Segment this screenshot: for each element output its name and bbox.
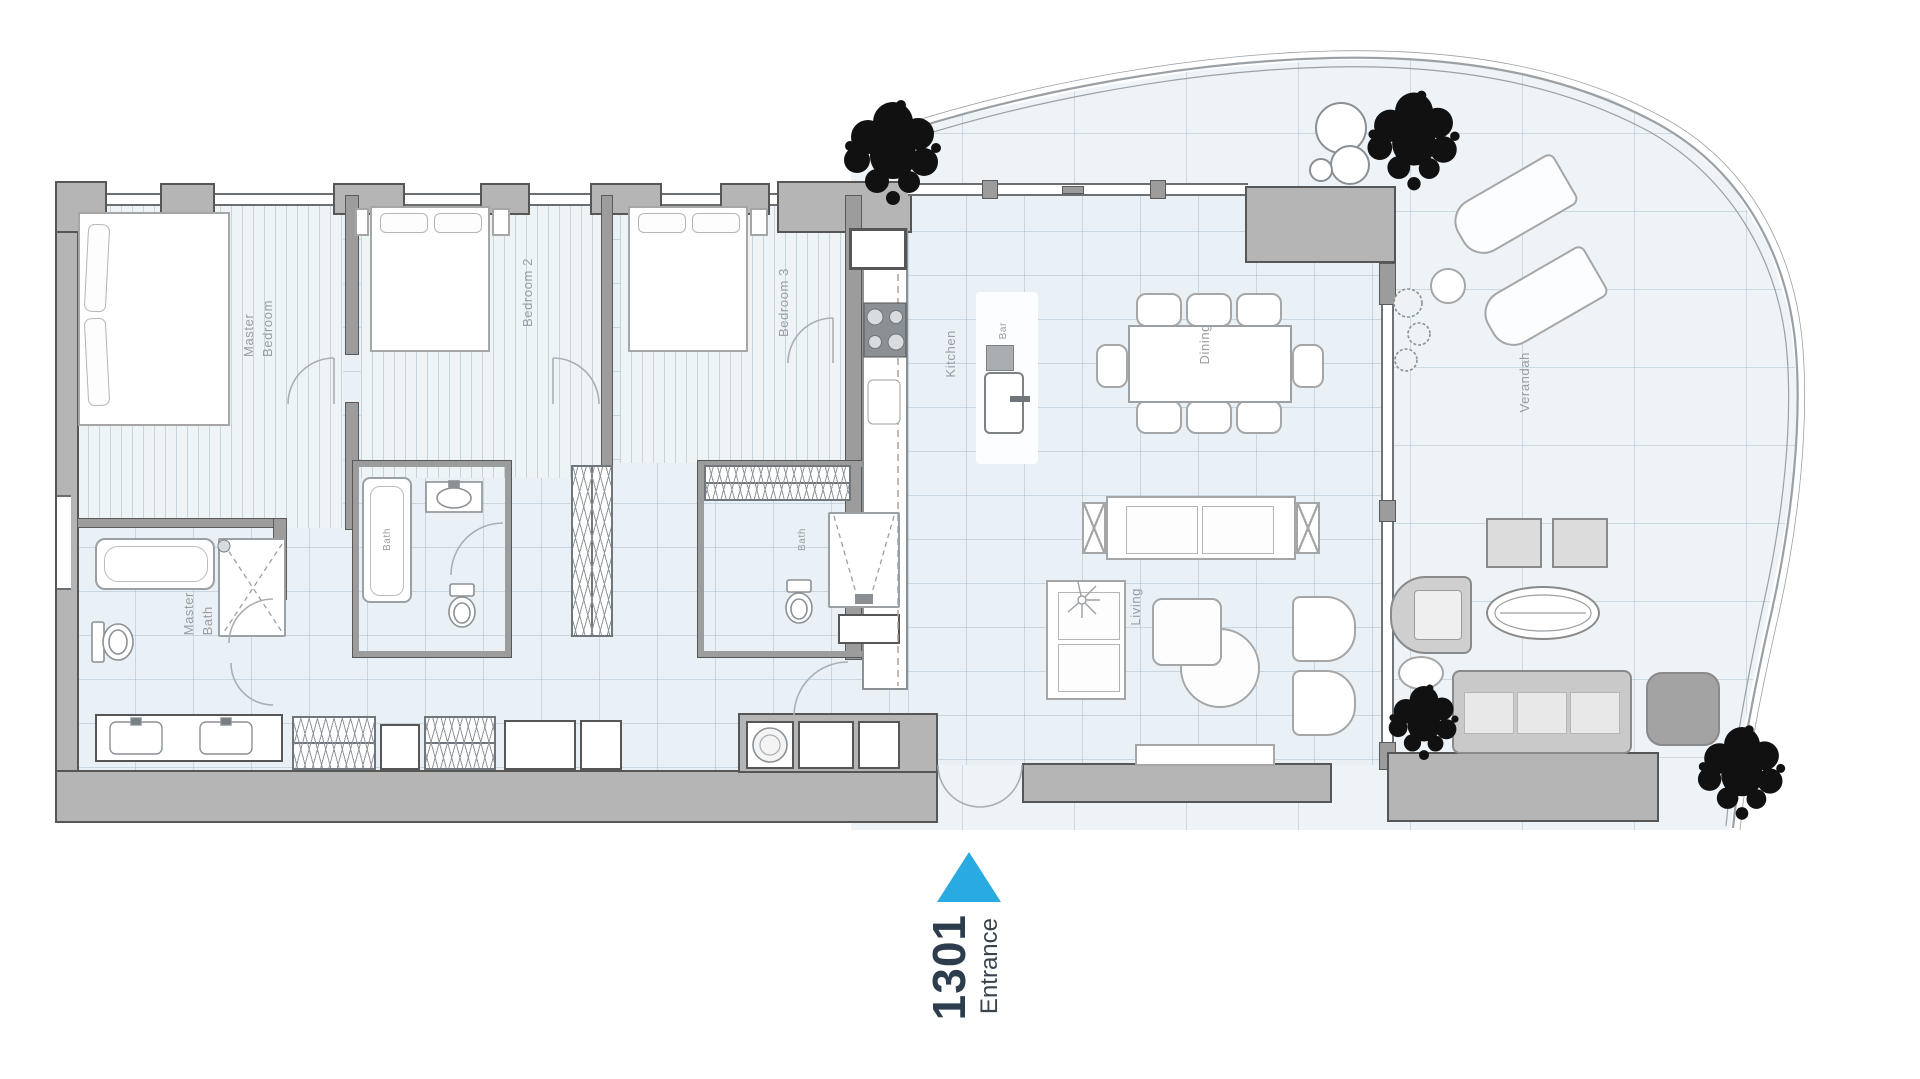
openplan-pier-2 (1150, 180, 1166, 199)
dining-chair-6 (1236, 400, 1282, 434)
lsofa-cushion-2 (1058, 644, 1120, 692)
living-sofa-main (1106, 496, 1296, 560)
label-living: Living (1127, 588, 1146, 626)
entrance-label: Entrance (976, 918, 1004, 1014)
master-bathtub-basin (104, 546, 208, 582)
living-armchair-1 (1292, 596, 1356, 662)
wall-bed2-bed3 (601, 195, 613, 478)
unit-number: 1301 (922, 914, 976, 1020)
living-armchair-2 (1292, 670, 1356, 736)
side-table-left (1082, 502, 1106, 554)
master-bed (78, 212, 230, 426)
outdoor-oval-table (1486, 586, 1600, 640)
master-bed-pillow-2 (84, 317, 111, 406)
wall-living-bottom (1022, 763, 1332, 803)
entrance-arrow-icon (937, 852, 1001, 902)
bed2-pillow-2 (434, 213, 482, 233)
living-sofa-l (1046, 580, 1126, 700)
hall-niche-1 (380, 724, 420, 770)
kitchen-shaft (849, 228, 907, 270)
label-dining: Dining (1196, 324, 1215, 364)
bed3-pillow-2 (692, 213, 740, 233)
outdoor-armchair-seat (1414, 590, 1462, 640)
verandah-chair-2 (1552, 518, 1608, 568)
floor-plan: Master Bedroom Bedroom 2 Bedroom 3 Maste… (0, 0, 1920, 1079)
utility-niche-washer (746, 721, 794, 769)
label-bath3: Bath (796, 528, 811, 551)
hall-wardrobe-2 (424, 716, 496, 770)
outdoor-pouf (1646, 672, 1720, 746)
living-bench (1135, 744, 1275, 766)
outdoor-armchair (1390, 576, 1472, 654)
label-bath2: Bath (381, 528, 396, 551)
bed2-pillow-1 (380, 213, 428, 233)
utility-niche-2 (798, 721, 854, 769)
utility-niche-3 (858, 721, 900, 769)
label-master-bath: Master Bath (180, 592, 218, 635)
outdoor-sofa-cushion-1 (1464, 692, 1514, 734)
wall-pier-1 (160, 183, 215, 215)
bed2 (370, 206, 490, 352)
hall-wardrobe-1 (292, 716, 376, 770)
window-left (57, 495, 71, 590)
outdoor-sofa-cushion-3 (1570, 692, 1620, 734)
nightstand-bed2 (355, 208, 369, 236)
wall-masterbath-top (77, 518, 285, 528)
bed3-pillow-1 (638, 213, 686, 233)
dining-chair-2 (1186, 293, 1232, 327)
label-bedroom3: Bedroom 3 (775, 268, 794, 337)
bed3 (628, 206, 748, 352)
bar-stool (986, 345, 1014, 371)
outdoor-sofa (1452, 670, 1632, 754)
nightstand-bed3 (750, 208, 768, 236)
dining-chair-5 (1186, 400, 1232, 434)
sofa-cushion-2 (1202, 506, 1274, 554)
dining-chair-3 (1236, 293, 1282, 327)
wall-block-top (1245, 186, 1396, 263)
hall-niche-3 (580, 720, 622, 770)
dining-chair-4 (1136, 400, 1182, 434)
dining-chair-right (1292, 344, 1324, 388)
label-verandah: Verandah (1516, 352, 1535, 412)
outdoor-small-table (1398, 656, 1444, 690)
dining-chair-left (1096, 344, 1128, 388)
openplan-pier-1 (982, 180, 998, 199)
divider-stub-top (1379, 263, 1396, 305)
master-vanity (95, 714, 283, 762)
label-kitchen: Kitchen (942, 330, 961, 378)
master-bathtub (95, 538, 215, 590)
label-bar: Bar (997, 322, 1012, 339)
hall-niche-2 (504, 720, 576, 770)
verandah-side-table (1430, 268, 1466, 304)
bath3-shower (828, 512, 900, 608)
coffee-table (1152, 598, 1222, 666)
wall-verandah-bottom (1387, 752, 1659, 822)
master-shower (218, 538, 286, 637)
side-table-right (1296, 502, 1320, 554)
walkin-wardrobe (571, 465, 613, 637)
wall-bottom (55, 770, 938, 823)
outdoor-sofa-cushion-2 (1517, 692, 1567, 734)
label-master-bedroom: Master Bedroom (240, 300, 278, 357)
master-bed-pillow-1 (84, 223, 111, 312)
bath3-niche (838, 614, 900, 644)
divider-stub-mid (1379, 500, 1396, 522)
bed3-wardrobe (704, 465, 851, 501)
sofa-cushion-1 (1126, 506, 1198, 554)
verandah-chair-1 (1486, 518, 1542, 568)
label-bedroom2: Bedroom 2 (519, 258, 538, 327)
bar-counter (984, 372, 1024, 434)
openplan-window-handle (1062, 186, 1084, 194)
nightstand-bed2-right (492, 208, 510, 236)
dining-chair-1 (1136, 293, 1182, 327)
lsofa-cushion-1 (1058, 592, 1120, 640)
